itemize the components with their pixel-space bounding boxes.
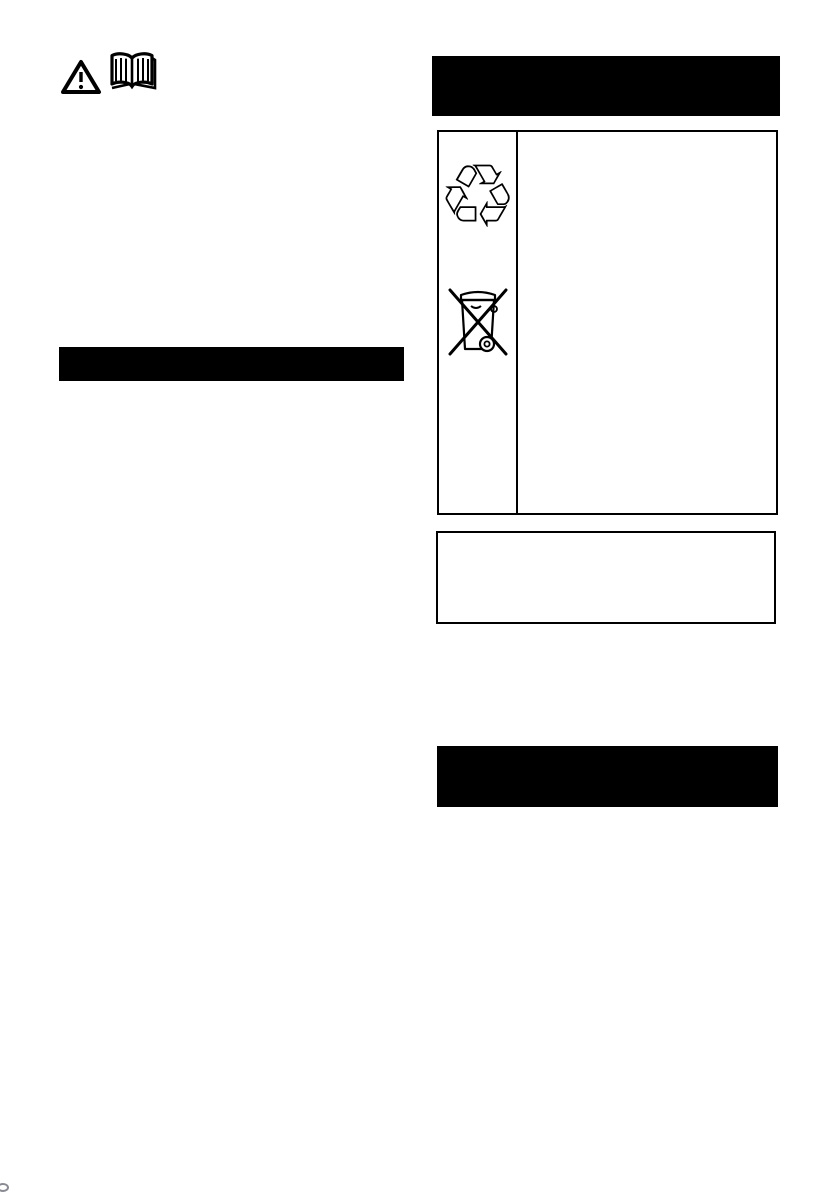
warning-triangle-icon	[60, 59, 102, 95]
manual-page: ♲	[0, 0, 840, 1192]
scan-artifact-speck	[0, 1183, 9, 1192]
note-box	[436, 531, 776, 624]
safety-pictograms	[60, 50, 158, 95]
disposal-symbols-table: ♲	[437, 130, 778, 515]
recycling-arrows-icon: ♲	[438, 153, 517, 241]
left-section-heading-bar	[59, 347, 404, 381]
weee-crossed-out-bin-icon	[447, 285, 509, 359]
table-cell-description	[518, 269, 776, 513]
right-section-heading-bar-bottom	[437, 746, 778, 807]
right-section-heading-bar-top	[432, 56, 780, 116]
table-row: ♲	[439, 132, 518, 269]
table-row	[439, 269, 518, 513]
open-book-icon	[106, 50, 158, 95]
table-cell-description	[518, 132, 776, 269]
